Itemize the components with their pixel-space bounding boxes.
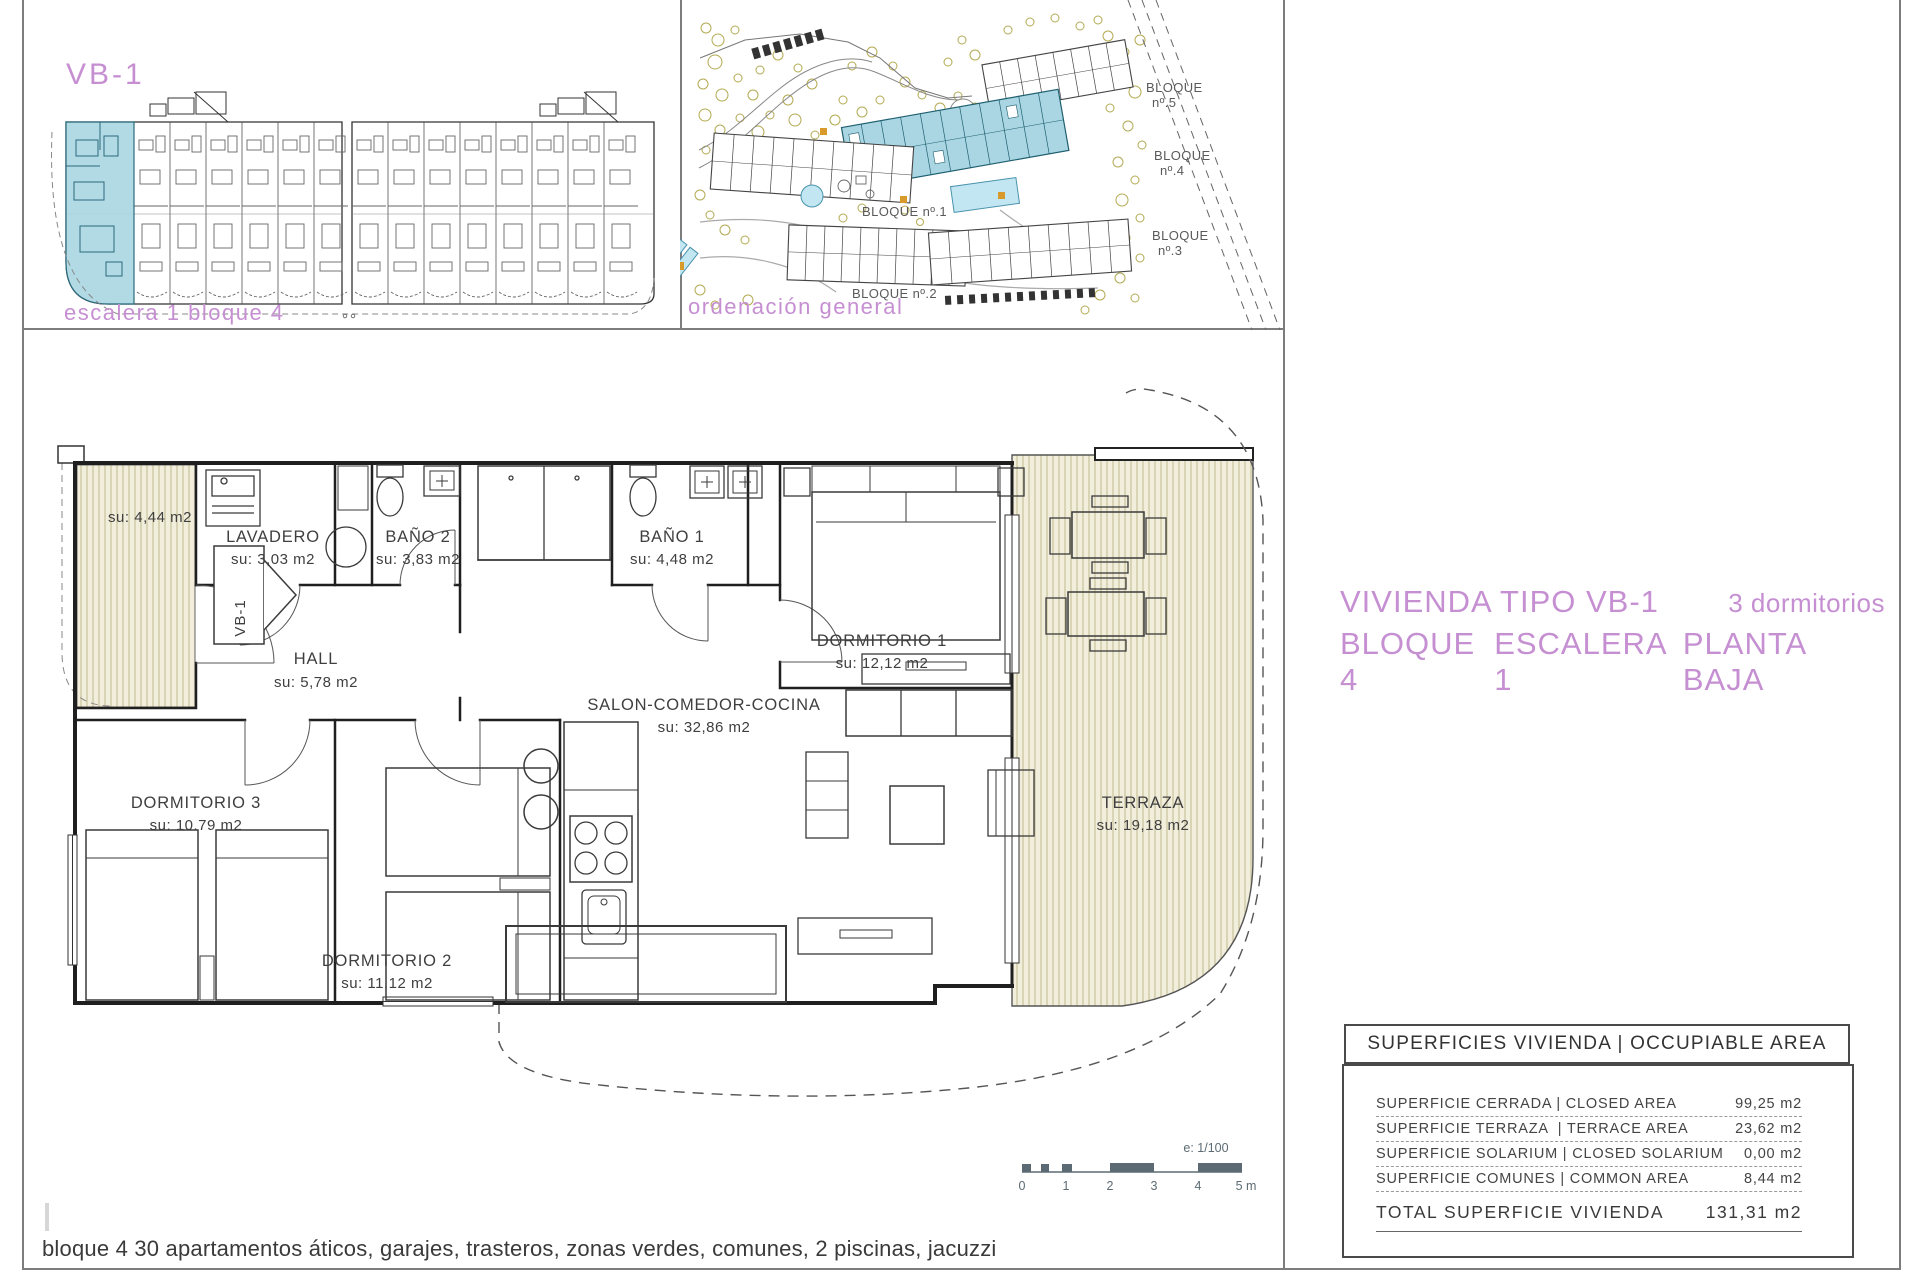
lavadero-name: LAVADERO xyxy=(226,528,320,546)
dormitorio2-area: su: 11,12 m2 xyxy=(341,975,433,992)
table-total-row: TOTAL SUPERFICIE VIVIENDA 131,31 m2 xyxy=(1376,1202,1802,1232)
bano2-area: su: 3,83 m2 xyxy=(376,551,460,568)
hall-area: su: 5,78 m2 xyxy=(274,674,358,691)
scale-tick-4: 4 xyxy=(1195,1179,1202,1193)
row-value: 99,25 m2 xyxy=(1735,1096,1802,1112)
row-label: SUPERFICIE COMUNES | COMMON AREA xyxy=(1376,1171,1689,1187)
title-bloque: BLOQUE 4 xyxy=(1340,626,1494,698)
dormitorio1-area: su: 12,12 m2 xyxy=(836,655,929,672)
bano2-name: BAÑO 2 xyxy=(385,526,450,546)
row-value: 8,44 m2 xyxy=(1744,1171,1802,1187)
total-label: TOTAL SUPERFICIE VIVIENDA xyxy=(1376,1202,1664,1223)
bloque4-label-2: nº.4 xyxy=(1160,163,1184,178)
parking-row-bloque3 xyxy=(945,288,1095,305)
dormitorio3-name: DORMITORIO 3 xyxy=(131,794,261,812)
building-strip xyxy=(66,92,654,304)
table-row: SUPERFICIE COMUNES | COMMON AREA 8,44 m2 xyxy=(1376,1167,1802,1192)
hall-name: HALL xyxy=(294,650,338,668)
scale-bar: e: 1/100 0 1 2 3 4 5 m xyxy=(1019,1141,1257,1193)
page-title: VIVIENDA TIPO VB-1 xyxy=(1340,584,1659,620)
terraza-name: TERRAZA xyxy=(1102,794,1185,812)
total-value: 131,31 m2 xyxy=(1706,1202,1802,1223)
salon-area: su: 32,86 m2 xyxy=(658,719,751,736)
lavadero-area: su: 3,03 m2 xyxy=(231,551,315,568)
areas-table: SUPERFICIE CERRADA | CLOSED AREA 99,25 m… xyxy=(1342,1064,1854,1258)
dormitorio2-name: DORMITORIO 2 xyxy=(322,952,452,970)
panel-escalera-caption: escalera 1 bloque 4 xyxy=(64,300,285,325)
floor-plan: VB-1 su: 4,44 m2 LAVADERO su: 3,03 m2 BA… xyxy=(22,330,1283,1268)
bloque3-label-1: BLOQUE xyxy=(1152,228,1209,243)
panel-escalera: VB-1 xyxy=(22,0,680,330)
scale-tick-5: 5 m xyxy=(1236,1179,1257,1193)
windows xyxy=(68,515,1019,1006)
bloque1-label: BLOQUE nº.1 xyxy=(862,204,947,219)
dormitorio1-name: DORMITORIO 1 xyxy=(817,632,947,650)
table-row: SUPERFICIE TERRAZA | TERRACE AREA 23,62 … xyxy=(1376,1117,1802,1142)
bano1-name: BAÑO 1 xyxy=(639,526,704,546)
dormitorio3-area: su: 10.79 m2 xyxy=(150,817,243,834)
rail-lines xyxy=(1128,0,1280,330)
row-label: SUPERFICIE CERRADA | CLOSED AREA xyxy=(1376,1096,1677,1112)
footer-caption: bloque 4 30 apartamentos áticos, garajes… xyxy=(42,1236,997,1262)
expansion-joint xyxy=(343,314,355,318)
bloque4-label-1: BLOQUE xyxy=(1154,148,1211,163)
table-row: SUPERFICIE SOLARIUM | CLOSED SOLARIUM 0,… xyxy=(1376,1142,1802,1167)
bloque5-label-2: nº.5 xyxy=(1152,95,1176,110)
panel-ordenacion-caption: ordenación general xyxy=(688,294,903,319)
entry-marker-label: VB-1 xyxy=(232,599,249,636)
border-right xyxy=(1899,0,1901,1270)
bloque3-label-2: nº.3 xyxy=(1158,243,1182,258)
unit-marks xyxy=(134,136,638,297)
scale-tick-2: 2 xyxy=(1107,1179,1114,1193)
bano1-area: su: 4,48 m2 xyxy=(630,551,714,568)
areas-table-header: SUPERFICIES VIVIENDA | OCCUPIABLE AREA xyxy=(1344,1024,1850,1064)
title-planta: PLANTA BAJA xyxy=(1683,626,1885,698)
title-escalera: ESCALERA 1 xyxy=(1494,626,1683,698)
parking-row-top xyxy=(751,29,824,60)
title-bedrooms: 3 dormitorios xyxy=(1728,588,1885,619)
porch-area xyxy=(58,446,195,707)
scale-tick-1: 1 xyxy=(1063,1179,1070,1193)
porche-area: su: 4,44 m2 xyxy=(108,509,192,526)
plan-sheet: VB-1 xyxy=(0,0,1920,1280)
panel-escalera-tag: VB-1 xyxy=(66,58,145,91)
scale-note: e: 1/100 xyxy=(1183,1141,1228,1155)
panel-ordenacion: BLOQUE nº.5 BLOQUE nº.4 BLOQUE nº.1 BLOQ… xyxy=(680,0,1283,330)
scale-tick-3: 3 xyxy=(1151,1179,1158,1193)
strip-dashed-boundary xyxy=(52,132,654,314)
row-value: 23,62 m2 xyxy=(1735,1121,1802,1137)
salon-name: SALON-COMEDOR-COCINA xyxy=(587,696,820,714)
row-value: 0,00 m2 xyxy=(1744,1146,1802,1162)
fold-tick xyxy=(45,1203,49,1231)
scale-tick-0: 0 xyxy=(1019,1179,1026,1193)
bloque-3 xyxy=(928,219,1131,285)
border-main-right xyxy=(1283,0,1285,1270)
row-label: SUPERFICIE SOLARIUM | CLOSED SOLARIUM xyxy=(1376,1146,1724,1162)
table-row: SUPERFICIE CERRADA | CLOSED AREA 99,25 m… xyxy=(1376,1092,1802,1117)
title-block: VIVIENDA TIPO VB-1 3 dormitorios BLOQUE … xyxy=(1340,584,1885,698)
row-label: SUPERFICIE TERRAZA | TERRACE AREA xyxy=(1376,1121,1688,1137)
highlighted-unit xyxy=(66,122,134,304)
bloque5-label-1: BLOQUE xyxy=(1146,80,1203,95)
terrace-area xyxy=(1012,448,1253,1006)
border-bottom xyxy=(22,1268,1901,1270)
terraza-area: su: 19,18 m2 xyxy=(1097,817,1190,834)
